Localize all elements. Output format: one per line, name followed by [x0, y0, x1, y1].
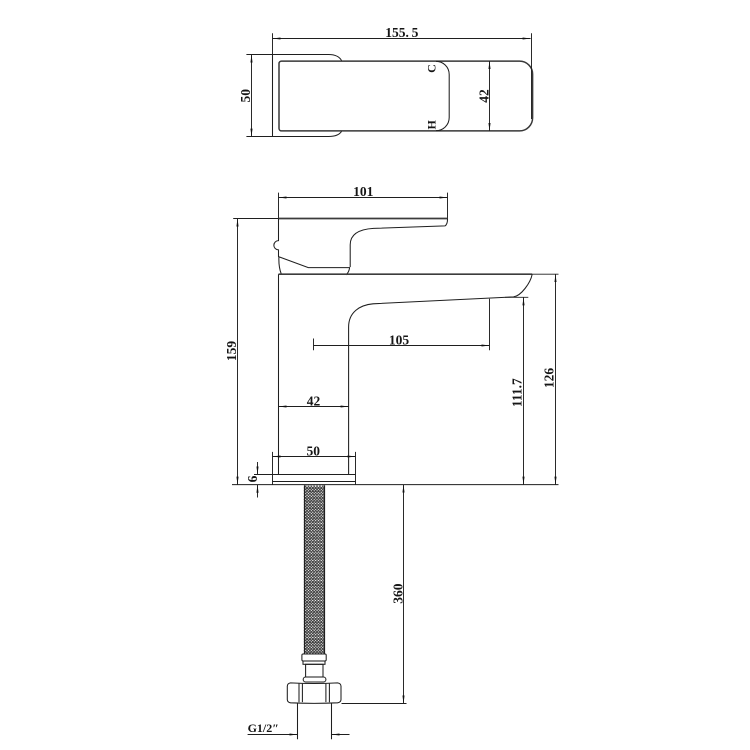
- svg-text:50: 50: [238, 89, 253, 103]
- svg-text:111.7: 111.7: [510, 378, 525, 407]
- svg-text:50: 50: [307, 443, 321, 458]
- svg-text:126: 126: [541, 368, 556, 389]
- svg-text:H: H: [425, 119, 439, 129]
- svg-text:159: 159: [224, 341, 239, 362]
- svg-text:6: 6: [245, 475, 260, 482]
- svg-text:42: 42: [477, 89, 492, 103]
- svg-text:101: 101: [353, 184, 374, 199]
- svg-text:42: 42: [307, 393, 321, 408]
- svg-text:155. 5: 155. 5: [385, 25, 418, 40]
- svg-text:360: 360: [391, 583, 406, 604]
- svg-text:G1/2″: G1/2″: [248, 721, 279, 735]
- svg-text:C: C: [425, 64, 439, 73]
- svg-text:105: 105: [389, 333, 410, 348]
